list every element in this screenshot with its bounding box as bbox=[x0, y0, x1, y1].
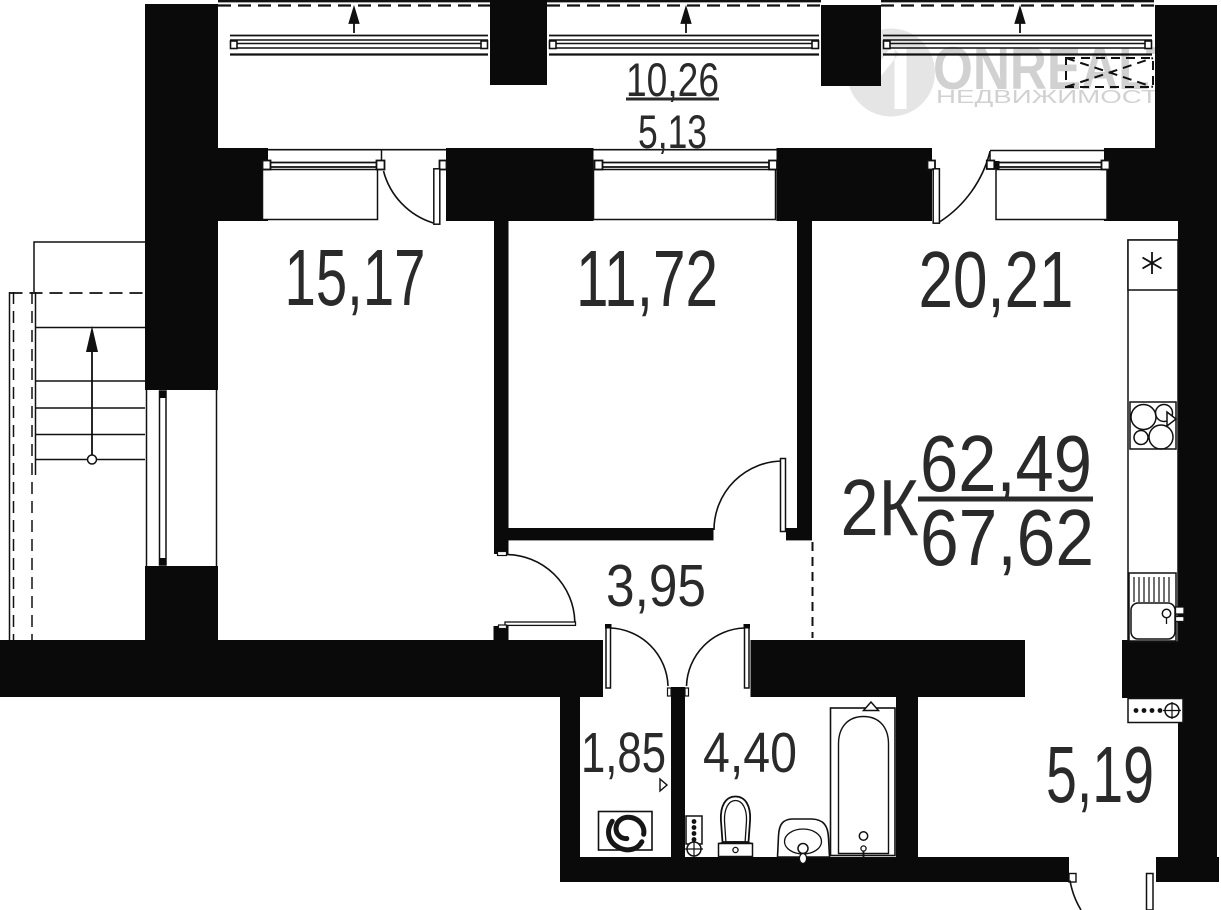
svg-text:1,85: 1,85 bbox=[581, 721, 666, 785]
svg-text:НЕДВИЖИМОСТЬ: НЕДВИЖИМОСТЬ bbox=[936, 87, 1176, 107]
svg-text:5,13: 5,13 bbox=[638, 105, 707, 158]
svg-text:3,95: 3,95 bbox=[606, 553, 706, 619]
svg-text:4,40: 4,40 bbox=[703, 721, 797, 785]
svg-text:11,72: 11,72 bbox=[576, 234, 718, 323]
svg-text:67,62: 67,62 bbox=[920, 493, 1094, 582]
svg-text:15,17: 15,17 bbox=[285, 233, 426, 322]
svg-text:5,19: 5,19 bbox=[1046, 730, 1154, 819]
svg-text:20,21: 20,21 bbox=[919, 235, 1074, 324]
svg-text:2К: 2К bbox=[841, 463, 919, 552]
